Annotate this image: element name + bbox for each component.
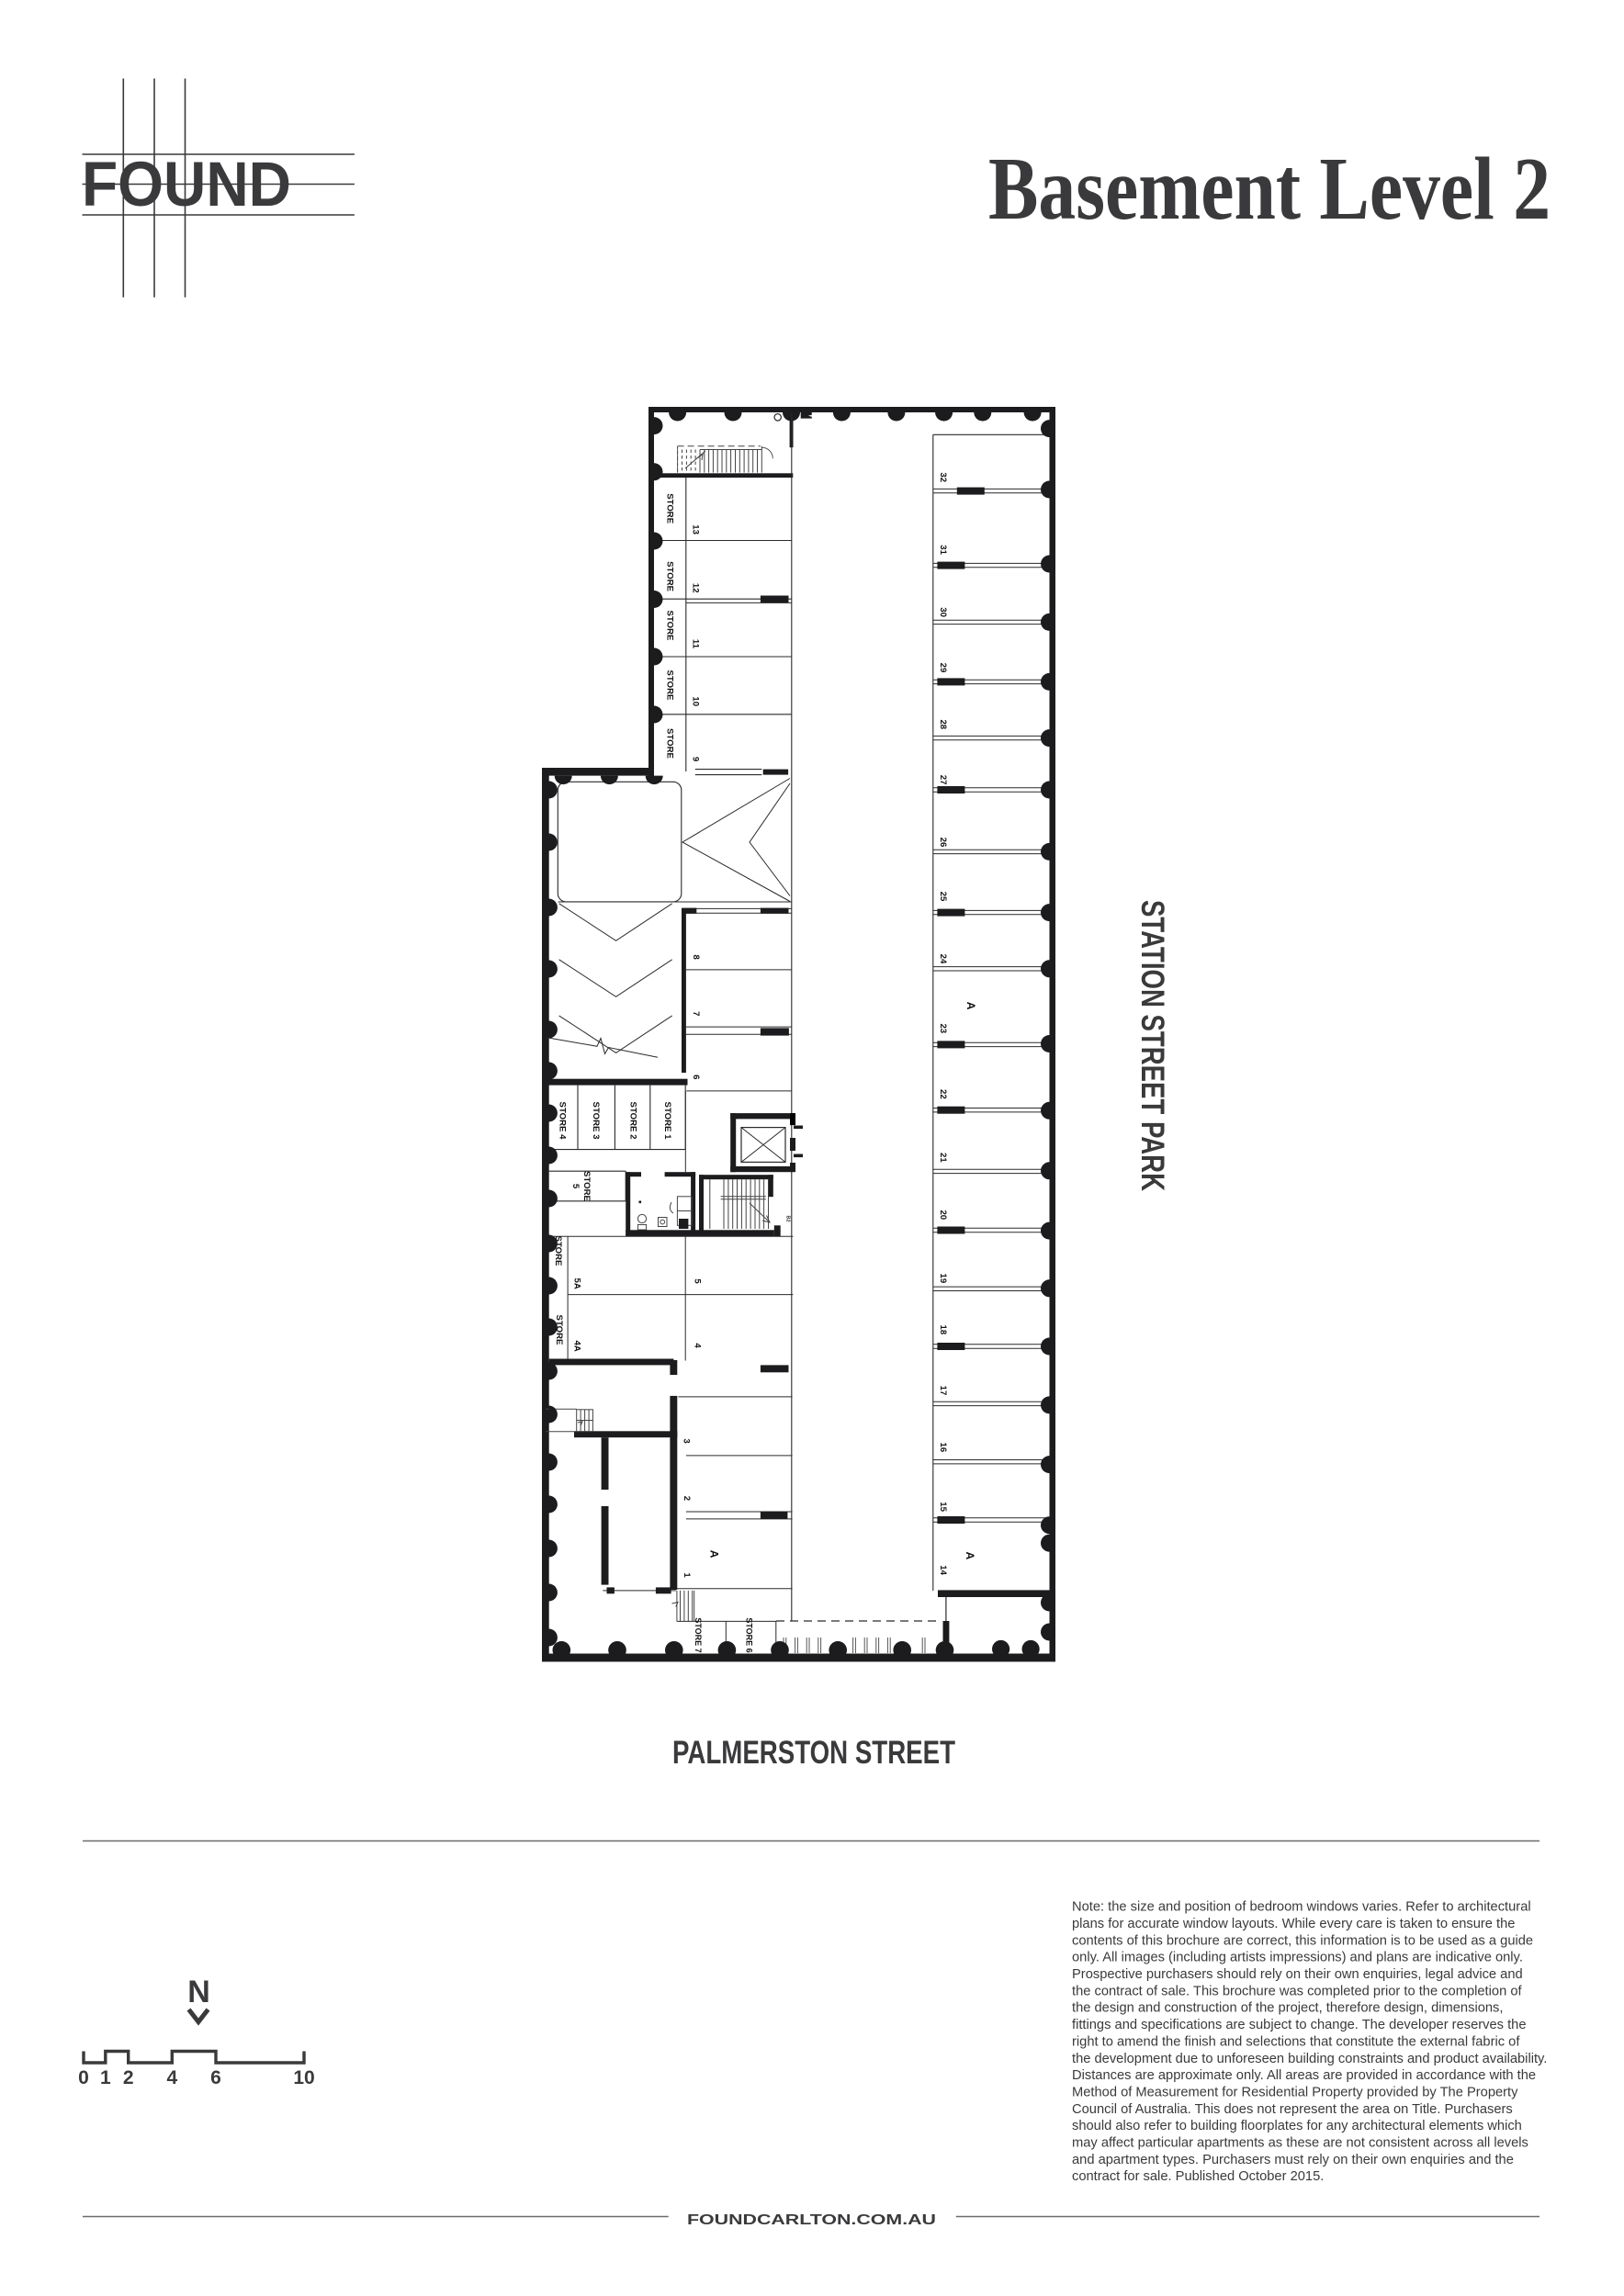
svg-text:5: 5 — [570, 1184, 581, 1189]
svg-text:8: 8 — [691, 955, 701, 961]
svg-text:7: 7 — [691, 1011, 701, 1016]
svg-text:Distances are approximate only: Distances are approximate only. All area… — [1072, 2068, 1536, 2083]
svg-text:11: 11 — [690, 639, 700, 649]
svg-text:30: 30 — [938, 607, 948, 617]
svg-text:only. All images (including ar: only. All images (including artists impr… — [1072, 1951, 1523, 1965]
svg-text:26: 26 — [938, 838, 948, 848]
svg-text:0: 0 — [78, 2067, 89, 2088]
svg-text:STORE 2: STORE 2 — [628, 1102, 638, 1140]
svg-text:6: 6 — [210, 2067, 221, 2088]
svg-text:28: 28 — [938, 719, 948, 729]
svg-text:the contract of sale. This bro: the contract of sale. This brochure was … — [1072, 1984, 1522, 1998]
svg-text:2: 2 — [123, 2067, 134, 2088]
svg-text:5: 5 — [693, 1278, 703, 1284]
svg-text:27: 27 — [938, 775, 948, 785]
svg-text:STATION STREET PARK: STATION STREET PARK — [1134, 900, 1170, 1191]
svg-text:5A: 5A — [572, 1278, 582, 1289]
svg-text:13: 13 — [690, 524, 700, 535]
svg-text:1: 1 — [100, 2067, 111, 2088]
svg-text:STORE 1: STORE 1 — [662, 1102, 672, 1141]
svg-text:14: 14 — [938, 1565, 948, 1575]
svg-text:plans for accurate window layo: plans for accurate window layouts. While… — [1072, 1917, 1515, 1931]
svg-text:FOUNDCARLTON.COM.AU: FOUNDCARLTON.COM.AU — [687, 2212, 936, 2228]
svg-text:the design and construction of: the design and construction of the proje… — [1072, 2001, 1503, 2016]
svg-text:23: 23 — [938, 1023, 948, 1033]
svg-text:2: 2 — [682, 1496, 692, 1501]
svg-text:12: 12 — [690, 583, 700, 593]
svg-text:and apartment types. Purchaser: and apartment types. Purchasers must rel… — [1072, 2153, 1514, 2167]
svg-text:32: 32 — [938, 472, 948, 482]
svg-text:STORE: STORE — [664, 493, 674, 523]
svg-text:STORE: STORE — [664, 561, 674, 591]
svg-text:fittings and specifications ar: fittings and specifications are subject … — [1072, 2018, 1527, 2032]
svg-text:contract for sale. Published O: contract for sale. Published October 201… — [1072, 2169, 1324, 2184]
svg-text:may affect particular apartmen: may affect particular apartments as thes… — [1072, 2136, 1528, 2151]
svg-text:29: 29 — [938, 663, 948, 673]
svg-text:FOUND: FOUND — [82, 149, 291, 219]
svg-text:4A: 4A — [572, 1341, 582, 1352]
svg-text:STORE 4: STORE 4 — [558, 1102, 568, 1141]
svg-text:STORE 6: STORE 6 — [744, 1617, 753, 1652]
svg-text:A: A — [708, 1550, 721, 1559]
svg-text:21: 21 — [938, 1153, 948, 1163]
svg-text:Note: the size and position of: Note: the size and position of bedroom w… — [1072, 1900, 1531, 1915]
svg-text:10: 10 — [690, 696, 700, 706]
svg-text:16: 16 — [938, 1443, 948, 1453]
svg-text:A: A — [964, 1002, 977, 1010]
svg-text:6: 6 — [691, 1075, 701, 1079]
svg-text:Council of Australia. This doe: Council of Australia. This does not repr… — [1072, 2102, 1513, 2117]
svg-text:22: 22 — [938, 1089, 948, 1099]
svg-text:Method of Measurement for Resi: Method of Measurement for Residential Pr… — [1072, 2085, 1518, 2099]
svg-text:STORE: STORE — [664, 728, 674, 759]
svg-text:15: 15 — [938, 1502, 948, 1512]
svg-text:25: 25 — [938, 892, 948, 902]
svg-text:STORE 3: STORE 3 — [591, 1102, 601, 1140]
svg-text:Basement Level 2: Basement Level 2 — [988, 140, 1551, 238]
svg-text:20: 20 — [938, 1210, 948, 1220]
svg-text:Prospective purchasers should: Prospective purchasers should rely on th… — [1072, 1967, 1523, 1982]
svg-text:right to amend the finish and: right to amend the finish and selections… — [1072, 2034, 1520, 2049]
svg-text:PALMERSTON STREET: PALMERSTON STREET — [672, 1735, 955, 1771]
svg-text:STORE: STORE — [581, 1171, 592, 1201]
svg-text:3: 3 — [682, 1438, 692, 1443]
svg-text:1: 1 — [682, 1572, 692, 1578]
svg-text:B2: B2 — [785, 1215, 791, 1221]
svg-text:31: 31 — [938, 545, 948, 555]
svg-text:contents of this brochure are: contents of this brochure are correct, t… — [1072, 1933, 1533, 1948]
svg-text:A: A — [964, 1551, 976, 1559]
svg-text:STORE: STORE — [664, 670, 674, 701]
svg-text:STORE: STORE — [664, 611, 674, 641]
svg-text:N: N — [187, 1975, 210, 2009]
svg-text:STORE 7: STORE 7 — [694, 1617, 703, 1652]
svg-text:4: 4 — [166, 2067, 177, 2088]
svg-text:4: 4 — [693, 1343, 703, 1348]
svg-text:17: 17 — [938, 1386, 948, 1396]
svg-text:24: 24 — [938, 954, 948, 964]
svg-text:should also refer to building: should also refer to building floorplate… — [1072, 2119, 1522, 2133]
svg-text:the development due to unfores: the development due to unforeseen buildi… — [1072, 2052, 1547, 2066]
svg-text:19: 19 — [938, 1274, 948, 1284]
svg-text:10: 10 — [293, 2067, 314, 2088]
svg-text:9: 9 — [690, 757, 700, 761]
svg-text:18: 18 — [938, 1325, 948, 1335]
